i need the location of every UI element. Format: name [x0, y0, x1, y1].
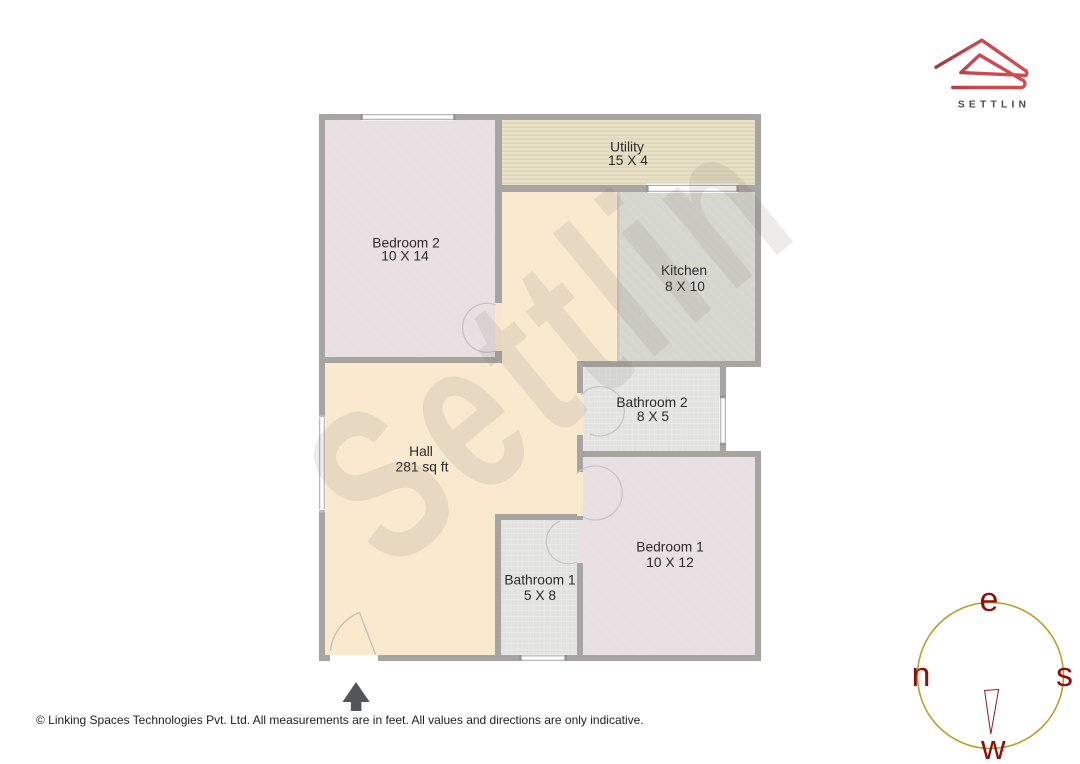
svg-text:s: s — [1056, 656, 1073, 694]
svg-text:SETTLIN: SETTLIN — [958, 100, 1030, 111]
svg-text:10 X 12: 10 X 12 — [646, 555, 694, 570]
svg-text:Bathroom 1: Bathroom 1 — [504, 573, 575, 588]
svg-text:n: n — [912, 656, 931, 694]
svg-text:10 X 14: 10 X 14 — [381, 249, 429, 264]
svg-text:Bedroom 1: Bedroom 1 — [636, 540, 704, 555]
svg-text:© Linking Spaces Technologies: © Linking Spaces Technologies Pvt. Ltd. … — [36, 713, 644, 727]
svg-text:e: e — [980, 581, 999, 619]
svg-text:5 X 8: 5 X 8 — [524, 588, 557, 603]
svg-text:w: w — [980, 729, 1006, 764]
